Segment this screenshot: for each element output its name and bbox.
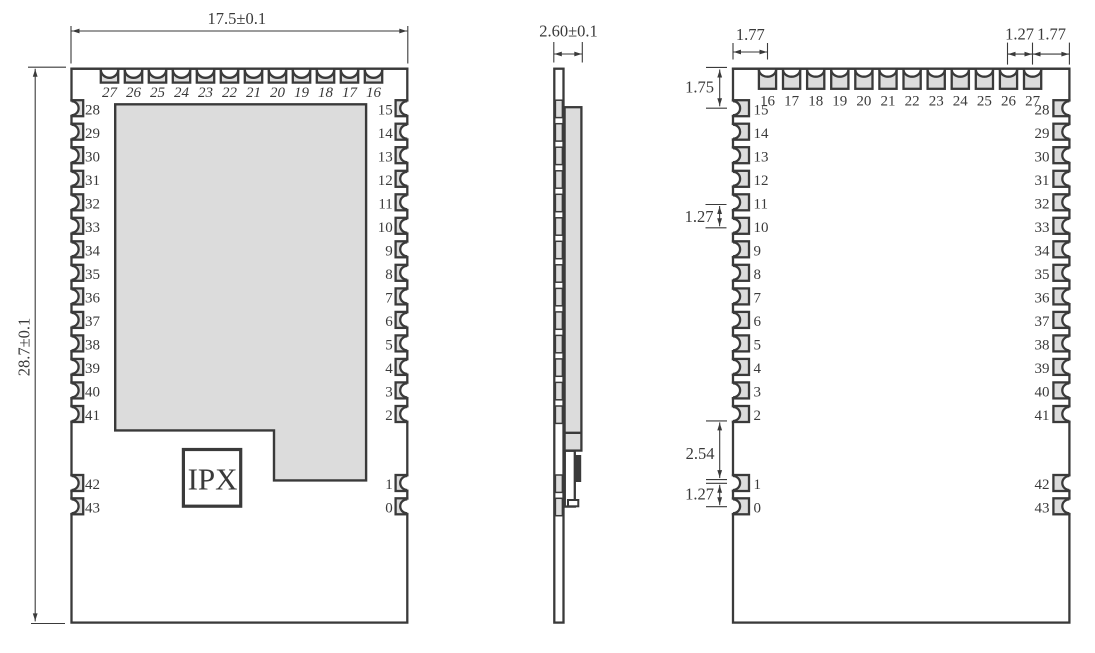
svg-text:36: 36 [1035, 291, 1051, 307]
svg-text:32: 32 [1035, 197, 1050, 213]
svg-text:20: 20 [270, 85, 286, 101]
svg-text:2: 2 [754, 408, 762, 424]
svg-text:34: 34 [1035, 244, 1051, 260]
svg-text:15: 15 [378, 102, 393, 118]
svg-text:27: 27 [102, 85, 119, 101]
svg-text:1: 1 [385, 477, 393, 493]
svg-text:21: 21 [881, 94, 896, 110]
svg-text:8: 8 [754, 267, 762, 283]
svg-text:19: 19 [832, 94, 847, 110]
svg-text:9: 9 [385, 244, 393, 260]
svg-text:22: 22 [905, 94, 920, 110]
svg-text:28.7±0.1: 28.7±0.1 [15, 318, 34, 377]
svg-text:12: 12 [378, 173, 393, 189]
svg-text:25: 25 [977, 94, 992, 110]
svg-text:10: 10 [754, 220, 769, 236]
svg-text:1: 1 [754, 477, 762, 493]
svg-text:42: 42 [85, 477, 100, 493]
svg-text:24: 24 [174, 85, 190, 101]
svg-text:9: 9 [754, 244, 762, 260]
svg-text:3: 3 [385, 385, 393, 401]
svg-text:26: 26 [1001, 94, 1017, 110]
svg-text:4: 4 [754, 361, 762, 377]
svg-text:23: 23 [929, 94, 944, 110]
svg-text:14: 14 [378, 126, 394, 142]
svg-text:35: 35 [1035, 267, 1050, 283]
svg-text:23: 23 [198, 85, 213, 101]
svg-text:33: 33 [1035, 220, 1050, 236]
svg-text:6: 6 [385, 314, 393, 330]
svg-text:6: 6 [754, 314, 762, 330]
svg-text:28: 28 [1035, 102, 1050, 118]
svg-text:15: 15 [754, 102, 769, 118]
svg-text:19: 19 [294, 85, 310, 101]
svg-text:11: 11 [754, 197, 768, 213]
svg-text:30: 30 [1035, 149, 1050, 165]
svg-text:30: 30 [85, 149, 100, 165]
svg-text:4: 4 [385, 361, 393, 377]
svg-text:2: 2 [385, 408, 393, 424]
svg-text:36: 36 [85, 291, 101, 307]
svg-text:5: 5 [385, 338, 393, 354]
svg-text:33: 33 [85, 220, 100, 236]
svg-text:0: 0 [754, 501, 762, 517]
svg-text:17: 17 [784, 94, 800, 110]
svg-text:24: 24 [953, 94, 969, 110]
svg-text:37: 37 [85, 314, 101, 330]
svg-text:2.54: 2.54 [686, 444, 715, 463]
svg-text:26: 26 [126, 85, 142, 101]
svg-text:7: 7 [754, 291, 762, 307]
svg-text:7: 7 [385, 291, 393, 307]
svg-text:25: 25 [150, 85, 166, 101]
svg-text:41: 41 [85, 408, 100, 424]
svg-text:40: 40 [85, 385, 100, 401]
svg-text:39: 39 [1035, 361, 1050, 377]
svg-text:28: 28 [85, 102, 100, 118]
svg-text:13: 13 [754, 149, 769, 165]
svg-text:37: 37 [1035, 314, 1051, 330]
svg-text:39: 39 [85, 361, 100, 377]
svg-text:14: 14 [754, 126, 770, 142]
svg-text:38: 38 [1035, 338, 1050, 354]
svg-text:10: 10 [378, 220, 393, 236]
svg-text:35: 35 [85, 267, 100, 283]
svg-text:42: 42 [1035, 477, 1050, 493]
svg-text:21: 21 [246, 85, 261, 101]
svg-text:29: 29 [1035, 126, 1050, 142]
svg-text:2.60±0.1: 2.60±0.1 [539, 22, 598, 41]
svg-text:20: 20 [856, 94, 871, 110]
svg-text:1.75: 1.75 [685, 78, 714, 97]
svg-text:11: 11 [378, 197, 392, 213]
svg-text:17.5±0.1: 17.5±0.1 [208, 9, 267, 28]
svg-text:16: 16 [366, 85, 382, 101]
svg-text:41: 41 [1035, 408, 1050, 424]
svg-text:31: 31 [85, 173, 100, 189]
svg-text:18: 18 [318, 85, 334, 101]
svg-text:1.27: 1.27 [685, 207, 714, 226]
svg-text:38: 38 [85, 338, 100, 354]
svg-text:1.77: 1.77 [736, 25, 765, 44]
svg-text:13: 13 [378, 149, 393, 165]
svg-text:43: 43 [1035, 501, 1050, 517]
svg-text:31: 31 [1035, 173, 1050, 189]
svg-text:22: 22 [222, 85, 238, 101]
svg-text:17: 17 [342, 85, 359, 101]
svg-text:1.77: 1.77 [1037, 25, 1066, 44]
svg-text:3: 3 [754, 385, 762, 401]
svg-text:0: 0 [385, 501, 393, 517]
svg-text:1.27: 1.27 [685, 485, 714, 504]
svg-text:IPX: IPX [188, 462, 238, 497]
svg-text:12: 12 [754, 173, 769, 189]
svg-text:34: 34 [85, 244, 101, 260]
svg-text:5: 5 [754, 338, 762, 354]
svg-text:29: 29 [85, 126, 100, 142]
svg-text:8: 8 [385, 267, 393, 283]
svg-text:1.27: 1.27 [1005, 25, 1034, 44]
svg-text:43: 43 [85, 501, 100, 517]
svg-text:32: 32 [85, 197, 100, 213]
svg-text:18: 18 [808, 94, 823, 110]
svg-text:40: 40 [1035, 385, 1050, 401]
